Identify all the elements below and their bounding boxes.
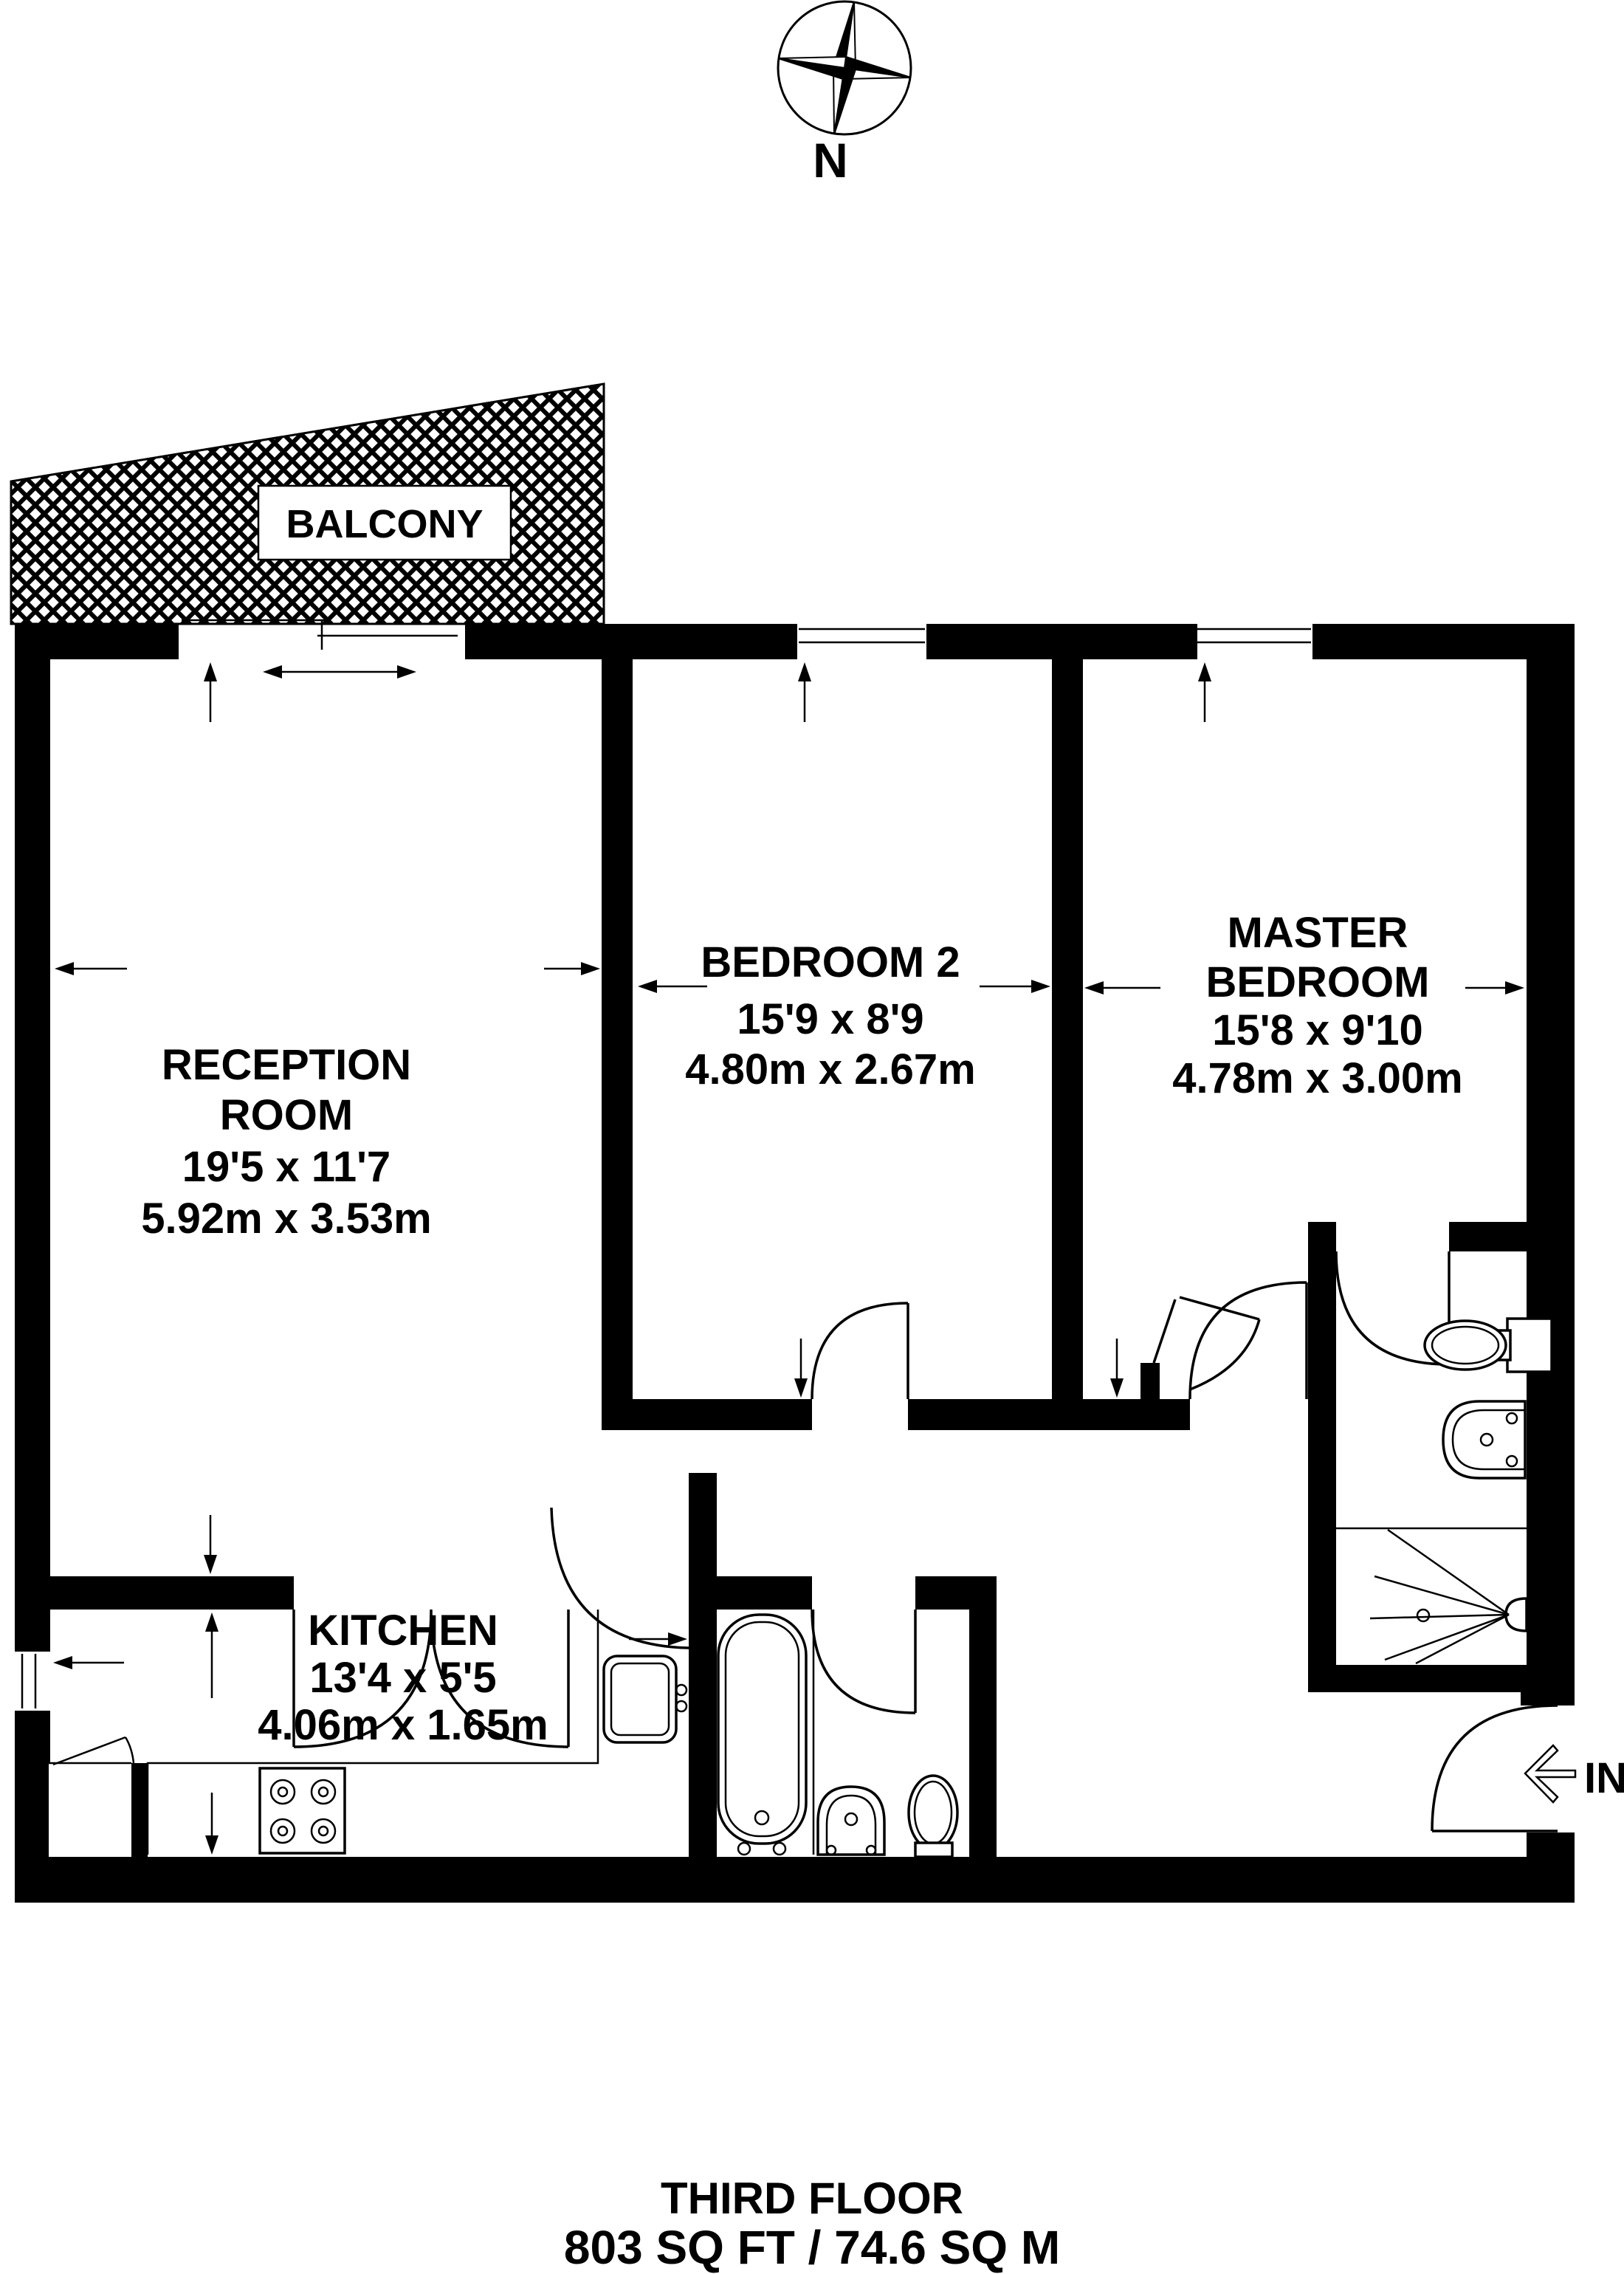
kitchen-window (22, 1654, 35, 1708)
bathroom-door (812, 1610, 915, 1713)
floor-area: 803 SQ FT / 74.6 SQ M (564, 2221, 1060, 2274)
reception-name-1: RECEPTION (162, 1041, 411, 1089)
bedroom2-dims-imperial: 15'9 x 8'9 (737, 995, 923, 1043)
hall-door (551, 1508, 689, 1648)
master-dims-imperial: 15'8 x 9'10 (1212, 1006, 1423, 1054)
kitchen-sink-icon (604, 1656, 687, 1742)
footer: THIRD FLOOR 803 SQ FT / 74.6 SQ M (564, 2174, 1060, 2274)
bedroom2-dims-metric: 4.80m x 2.67m (685, 1045, 975, 1093)
ensuite-fixtures (1336, 1319, 1552, 1663)
north-label: N (813, 133, 848, 188)
shower-icon (1336, 1528, 1527, 1663)
master-bedroom-label: MASTER BEDROOM 15'8 x 9'10 4.78m x 3.00m (1172, 909, 1462, 1102)
kitchen-label: KITCHEN 13'4 x 5'5 4.06m x 1.65m (258, 1607, 548, 1749)
bathroom-sink-icon (818, 1787, 884, 1855)
bedroom2-door (812, 1303, 908, 1399)
bathtub-icon (718, 1615, 806, 1855)
recess-door (53, 1737, 134, 1765)
bathroom-fixtures (718, 1610, 957, 1857)
bedroom2-label: BEDROOM 2 15'9 x 8'9 4.80m x 2.67m (685, 938, 975, 1093)
closet-door (1154, 1297, 1259, 1390)
kitchen-name: KITCHEN (308, 1607, 498, 1655)
floor-title: THIRD FLOOR (661, 2174, 963, 2223)
stove-icon (260, 1768, 345, 1853)
kitchen-dims-imperial: 13'4 x 5'5 (309, 1654, 496, 1702)
master-dims-metric: 4.78m x 3.00m (1172, 1054, 1462, 1102)
reception-name-2: ROOM (220, 1091, 353, 1139)
master-name-1: MASTER (1228, 909, 1408, 957)
balcony-area: BALCONY (11, 384, 604, 624)
balcony-label: BALCONY (286, 502, 484, 546)
ensuite-sink-icon (1443, 1401, 1525, 1478)
entrance-arrow-icon (1525, 1745, 1575, 1802)
bathroom-toilet-icon (909, 1776, 957, 1857)
master-name-2: BEDROOM (1206, 958, 1430, 1006)
storage-recess (49, 1763, 131, 1857)
room-labels: RECEPTION ROOM 19'5 x 11'7 5.92m x 3.53m… (141, 909, 1462, 1749)
floor-plan: BALCONY N (0, 0, 1624, 2274)
floor-plan-page: BALCONY N (0, 0, 1624, 2274)
entrance-marker: IN (1525, 1745, 1624, 1802)
compass-rose-icon: N (778, 1, 911, 188)
kitchen-dims-metric: 4.06m x 1.65m (258, 1701, 548, 1749)
reception-dims-imperial: 19'5 x 11'7 (182, 1143, 390, 1191)
bedroom2-name: BEDROOM 2 (701, 938, 960, 986)
master-window (1197, 629, 1311, 642)
entrance-label: IN (1584, 1754, 1624, 1802)
reception-dims-metric: 5.92m x 3.53m (141, 1195, 431, 1243)
reception-room-label: RECEPTION ROOM 19'5 x 11'7 5.92m x 3.53m (141, 1041, 431, 1243)
ensuite-toilet-icon (1425, 1319, 1552, 1372)
bedroom2-window (799, 629, 925, 642)
